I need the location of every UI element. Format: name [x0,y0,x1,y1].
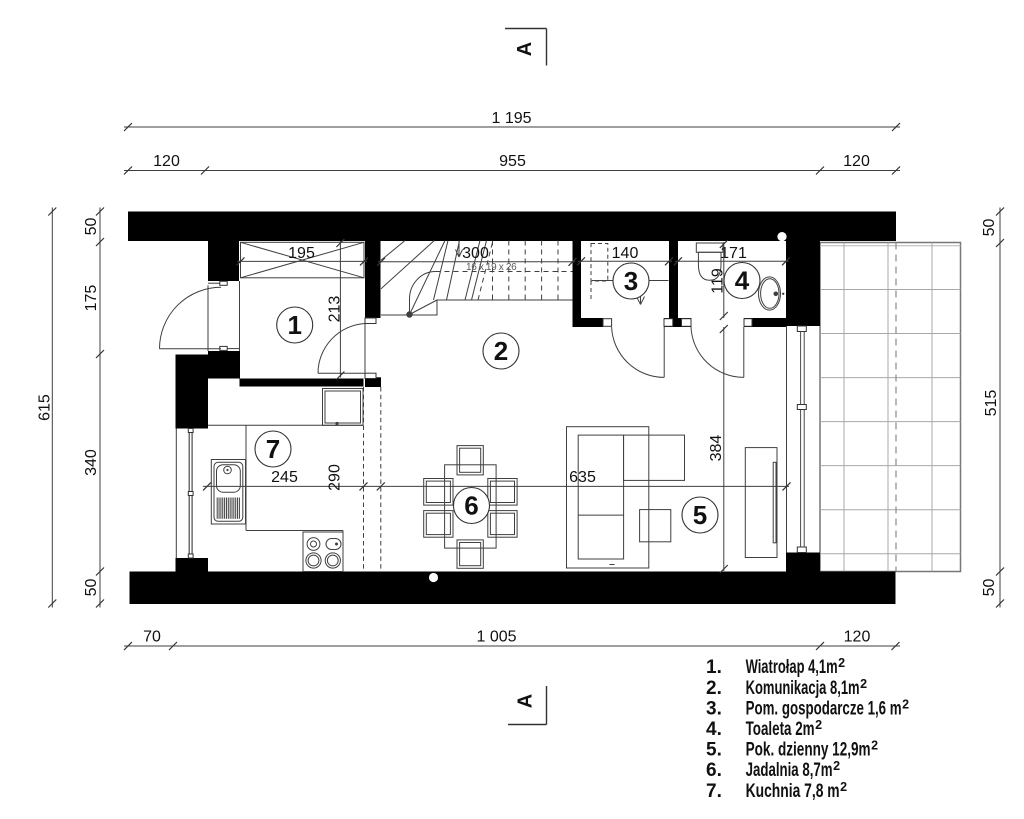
svg-text:120: 120 [844,629,871,646]
svg-text:Pom. gospodarcze 1,6 m: Pom. gospodarcze 1,6 m [746,698,902,719]
svg-text:615: 615 [37,394,54,421]
svg-text:50: 50 [981,219,998,237]
svg-text:515: 515 [983,390,1000,417]
svg-text:Jadalnia 8,7m: Jadalnia 8,7m [746,760,833,781]
svg-text:Pok. dzienny 12,9m: Pok. dzienny 12,9m [746,740,871,761]
svg-text:7.: 7. [706,781,722,802]
svg-text:70: 70 [143,629,161,646]
svg-text:340: 340 [83,449,100,476]
svg-text:140: 140 [612,245,639,262]
svg-text:1: 1 [287,310,301,340]
svg-text:120: 120 [153,153,180,170]
svg-text:4.: 4. [706,719,722,740]
svg-text:2: 2 [494,336,508,366]
svg-text:120: 120 [843,153,870,170]
svg-text:300: 300 [462,245,489,262]
svg-text:1 195: 1 195 [491,110,531,127]
svg-text:2: 2 [838,656,845,670]
svg-text:2: 2 [871,739,878,753]
svg-text:2: 2 [840,780,847,794]
svg-text:5: 5 [693,500,707,530]
svg-text:290: 290 [327,464,344,491]
svg-text:1 005: 1 005 [476,629,516,646]
svg-text:3: 3 [624,266,638,296]
svg-text:2: 2 [833,759,840,773]
svg-text:A: A [514,42,536,56]
svg-text:7: 7 [266,434,280,464]
svg-text:635: 635 [569,469,596,486]
svg-text:A: A [515,694,537,708]
svg-text:6: 6 [464,491,478,521]
svg-text:955: 955 [499,153,526,170]
svg-text:1.: 1. [706,657,722,678]
svg-text:Kuchnia 7,8 m: Kuchnia 7,8 m [746,781,840,802]
svg-text:2: 2 [860,677,867,691]
svg-text:245: 245 [271,469,298,486]
svg-text:6.: 6. [706,760,722,781]
svg-text:50: 50 [83,218,100,236]
svg-text:4: 4 [735,266,750,296]
svg-text:16 x 19 x 26: 16 x 19 x 26 [466,262,517,273]
svg-text:50: 50 [981,579,998,597]
svg-text:Komunikacja 8,1m: Komunikacja 8,1m [746,678,860,699]
svg-text:5.: 5. [706,740,722,761]
svg-text:384: 384 [708,435,725,462]
svg-text:50: 50 [83,579,100,597]
svg-text:2: 2 [902,697,909,711]
svg-text:Wiatrołap 4,1m: Wiatrołap 4,1m [746,657,838,678]
svg-text:175: 175 [83,285,100,312]
svg-text:Toaleta 2m: Toaleta 2m [746,719,815,740]
svg-text:3.: 3. [706,698,722,719]
svg-text:2: 2 [815,718,822,732]
svg-text:213: 213 [327,296,344,323]
svg-text:195: 195 [288,245,315,262]
svg-text:2.: 2. [706,678,722,699]
